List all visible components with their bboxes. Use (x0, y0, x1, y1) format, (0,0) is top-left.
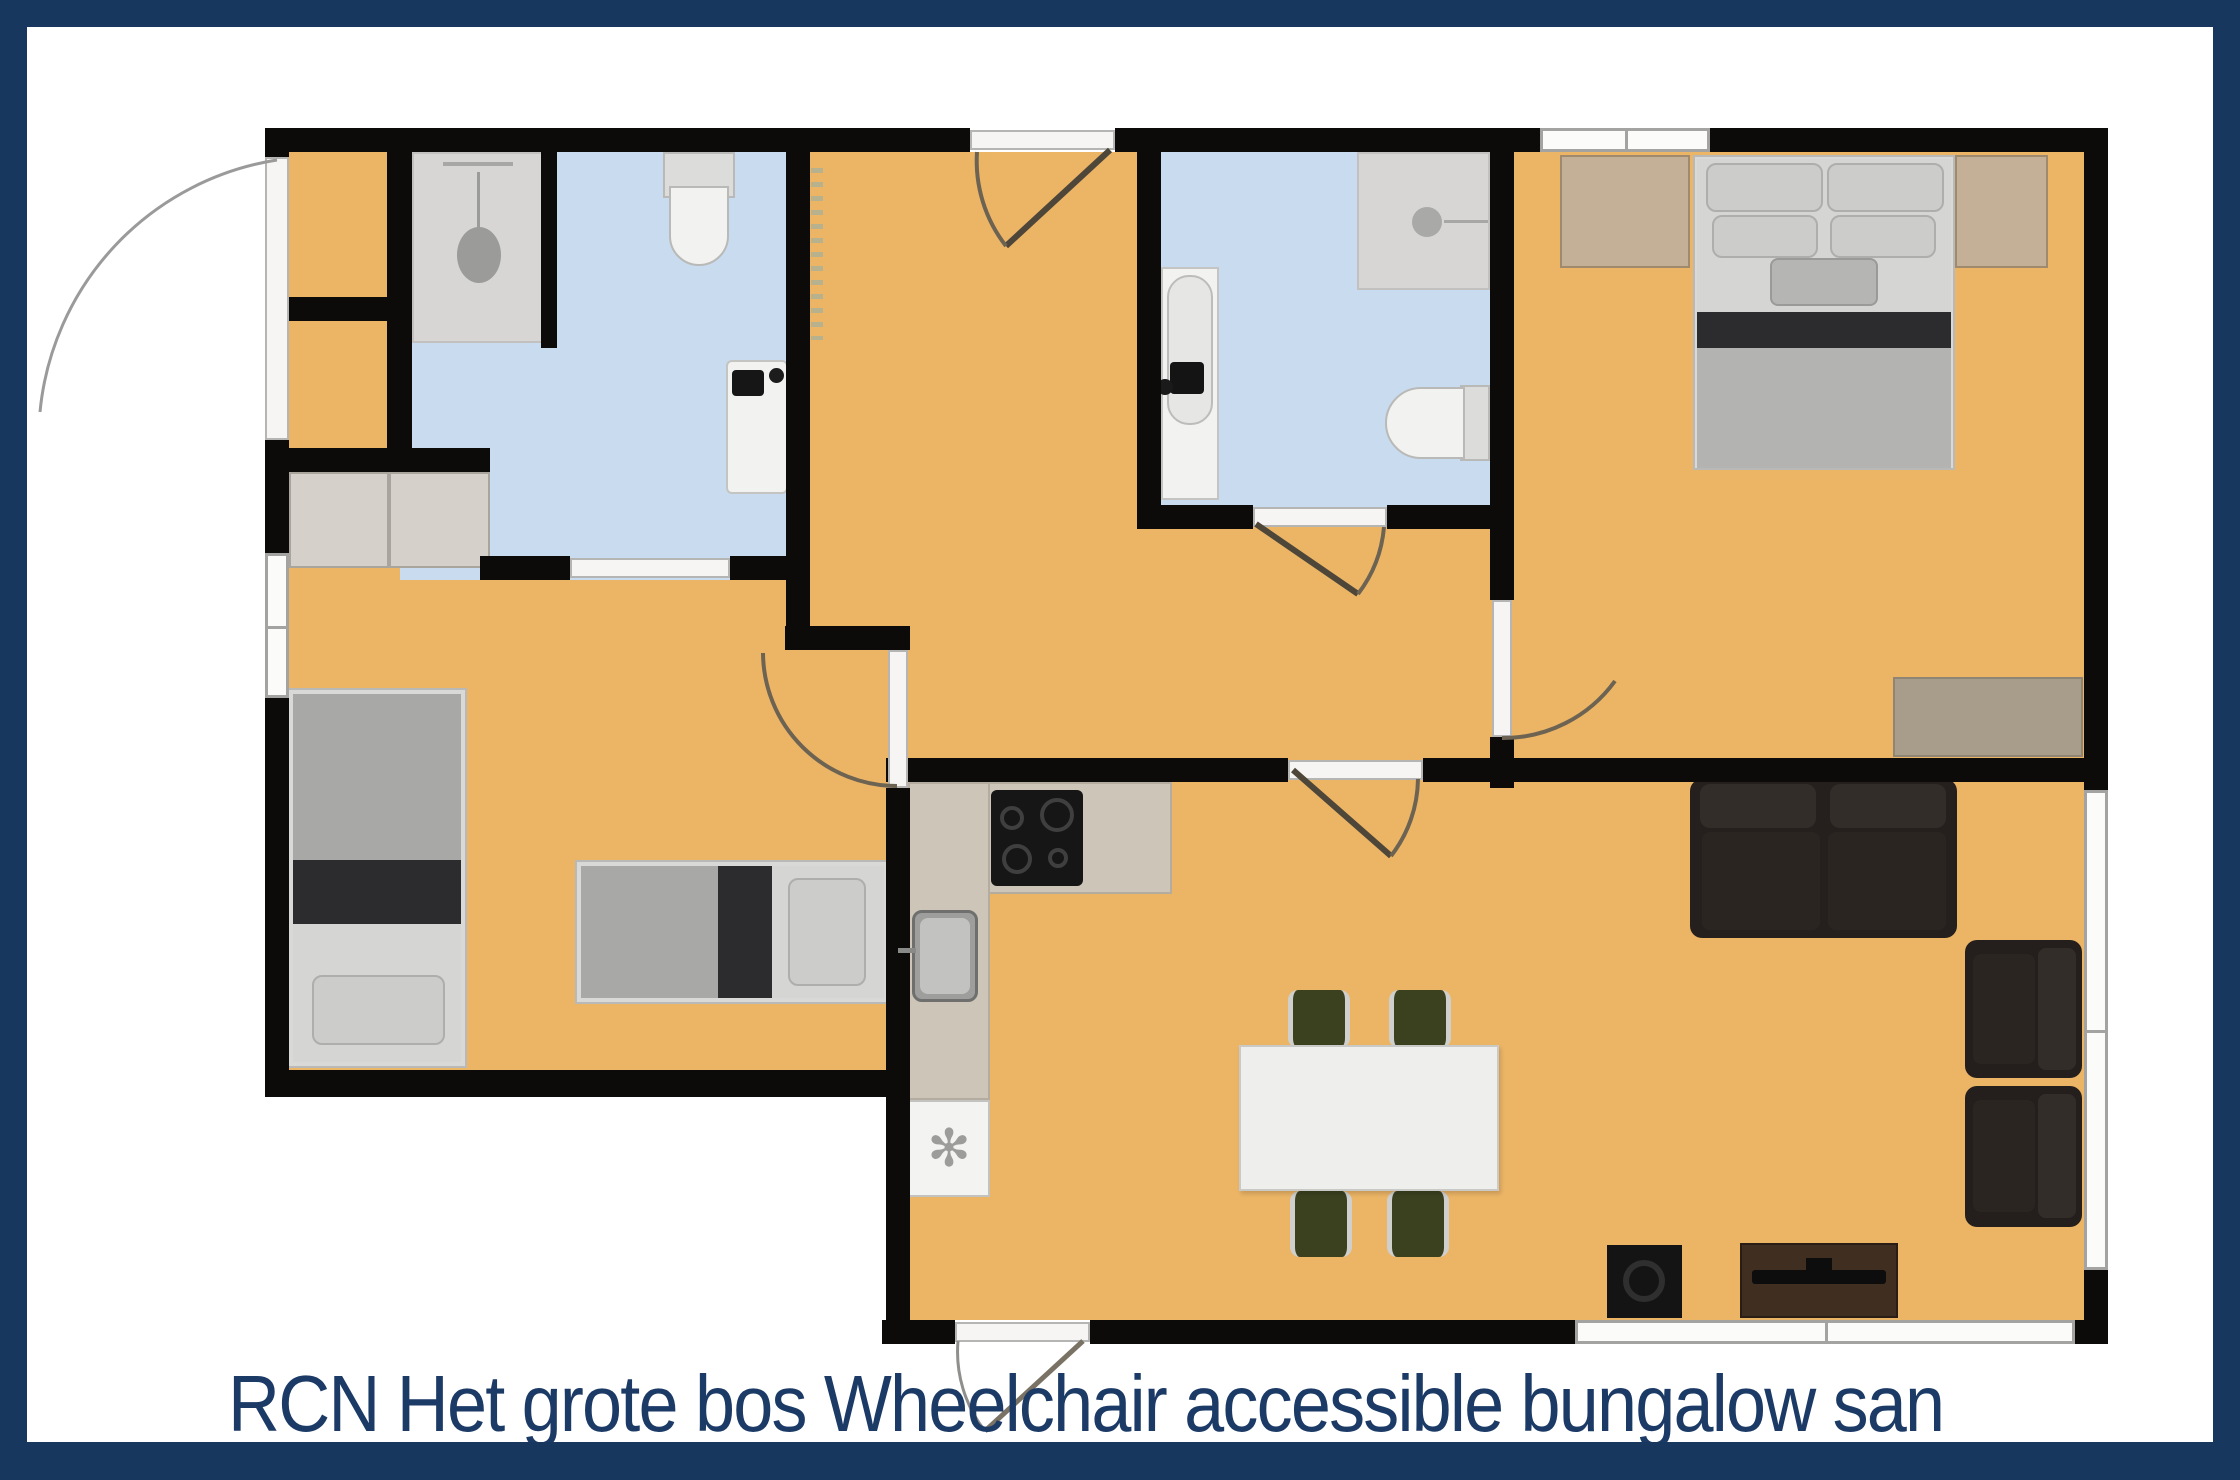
bedroom1-dresser (1893, 677, 2083, 757)
dining-chair-1 (1288, 990, 1350, 1048)
wall-shower1-partition (541, 152, 557, 348)
armchair-2-back (2038, 1094, 2076, 1218)
wall-living-top-b (1423, 758, 2108, 782)
toilet1-bowl (669, 186, 729, 266)
cooktop-burner-2 (1000, 806, 1024, 830)
wall-bath2-right (1490, 152, 1514, 600)
cooktop-burner-1 (1040, 798, 1074, 832)
single-bed-b-pillow (788, 878, 866, 986)
cooktop-burner-4 (1048, 848, 1068, 868)
wardrobe-right (389, 472, 490, 568)
kitchen-faucet-icon (898, 948, 916, 953)
tv-stand-icon (1806, 1258, 1832, 1270)
single-bed-b-mattress (581, 866, 718, 998)
frame-top (0, 0, 2240, 27)
wall-left-3 (265, 698, 289, 1097)
living-room-door (1288, 760, 1423, 780)
sofa-cushion-2 (1828, 832, 1946, 930)
wall-top-3 (1710, 128, 2108, 152)
kitchen-sink-basin (920, 918, 970, 994)
sink1-knob-icon (769, 368, 784, 383)
wall-closet-top (265, 448, 490, 472)
cooktop-burner-3 (1002, 844, 1032, 874)
sofa-cushion-1 (1702, 832, 1820, 930)
terrace-door (955, 1322, 1090, 1342)
shower2-faucet-icon (1444, 220, 1488, 223)
sink1-faucet-icon (732, 370, 764, 396)
bathtub2-faucet-icon (1170, 362, 1204, 394)
wall-left-1 (265, 128, 289, 159)
armchair-1-seat (1973, 954, 2035, 1064)
wall-bottom-3 (2075, 1320, 2108, 1344)
double-bed-pillow-1 (1706, 163, 1823, 212)
frame-bottom (0, 1442, 2240, 1480)
frame-right (2213, 0, 2240, 1480)
dining-table (1239, 1045, 1499, 1191)
bathroom2-door (1253, 507, 1387, 527)
wall-right-top (2084, 128, 2108, 790)
wall-bedroom2-bottom (265, 1070, 910, 1097)
front-door (265, 157, 289, 440)
shower1-faucet-icon (443, 162, 513, 166)
toilet2-bowl (1385, 387, 1465, 459)
wall-bath2-bottom-a (1137, 505, 1253, 529)
single-bed-a-pillow (312, 975, 445, 1045)
dining-chair-2 (1389, 990, 1451, 1048)
window-hallway-left (265, 553, 289, 698)
window-living-bottom (1575, 1320, 2075, 1344)
wall-bottom-2 (1090, 1320, 1575, 1344)
double-bed-blanket (1697, 312, 1951, 348)
wall-bath2-left (1137, 152, 1161, 528)
floorplan-page: ✻ RCN Het grote bo (0, 0, 2240, 1480)
double-bed-pillow-3 (1712, 215, 1818, 258)
dishwasher: ✻ (908, 1100, 990, 1197)
sofa-backrest (1700, 784, 1816, 828)
wall-top-2 (1115, 128, 1540, 152)
double-bed-duvet (1697, 348, 1951, 468)
radiator (811, 168, 823, 340)
single-bed-a-blanket (293, 860, 461, 924)
wall-bath1-bottom-b (730, 556, 810, 580)
double-bed-accent-pillow (1770, 258, 1878, 306)
wall-bath2-bottom-b (1387, 505, 1497, 529)
wall-top-1 (265, 128, 970, 152)
frame-left (0, 0, 27, 1480)
armchair-2-seat (1973, 1100, 2035, 1212)
shower2-drain-icon (1412, 207, 1442, 237)
caption: RCN Het grote bos Wheelchair accessible … (228, 1358, 1943, 1450)
nightstand-right (1955, 155, 2048, 268)
nightstand-left (1560, 155, 1690, 268)
dining-chair-4 (1387, 1191, 1449, 1257)
bedroom2-door (888, 650, 908, 788)
wardrobe-left (289, 472, 389, 568)
double-bed-pillow-4 (1830, 215, 1936, 258)
sofa-backrest-2 (1830, 784, 1946, 828)
wall-bath1-bottom-a (480, 556, 570, 580)
bathtub2-basin (1167, 275, 1213, 425)
bathroom1-door (570, 558, 730, 578)
shower1-hose (477, 172, 480, 232)
tv-icon (1752, 1270, 1886, 1284)
middle-room-entry-door (970, 130, 1115, 150)
window-bedroom1-top (1540, 128, 1710, 152)
dishwasher-icon: ✻ (927, 1119, 971, 1179)
wood-stove-ring-icon (1623, 1260, 1665, 1302)
single-bed-b-blanket (718, 866, 772, 998)
bedroom1-door (1492, 600, 1512, 737)
double-bed-pillow-2 (1827, 163, 1944, 212)
wall-kitchen-left (886, 788, 910, 1344)
dining-chair-3 (1290, 1191, 1352, 1257)
window-living-right (2084, 790, 2108, 1270)
armchair-1-back (2038, 948, 2076, 1070)
shower1-head-icon (457, 227, 501, 283)
wall-living-top-a (886, 758, 1288, 782)
single-bed-a-mattress (293, 694, 461, 860)
